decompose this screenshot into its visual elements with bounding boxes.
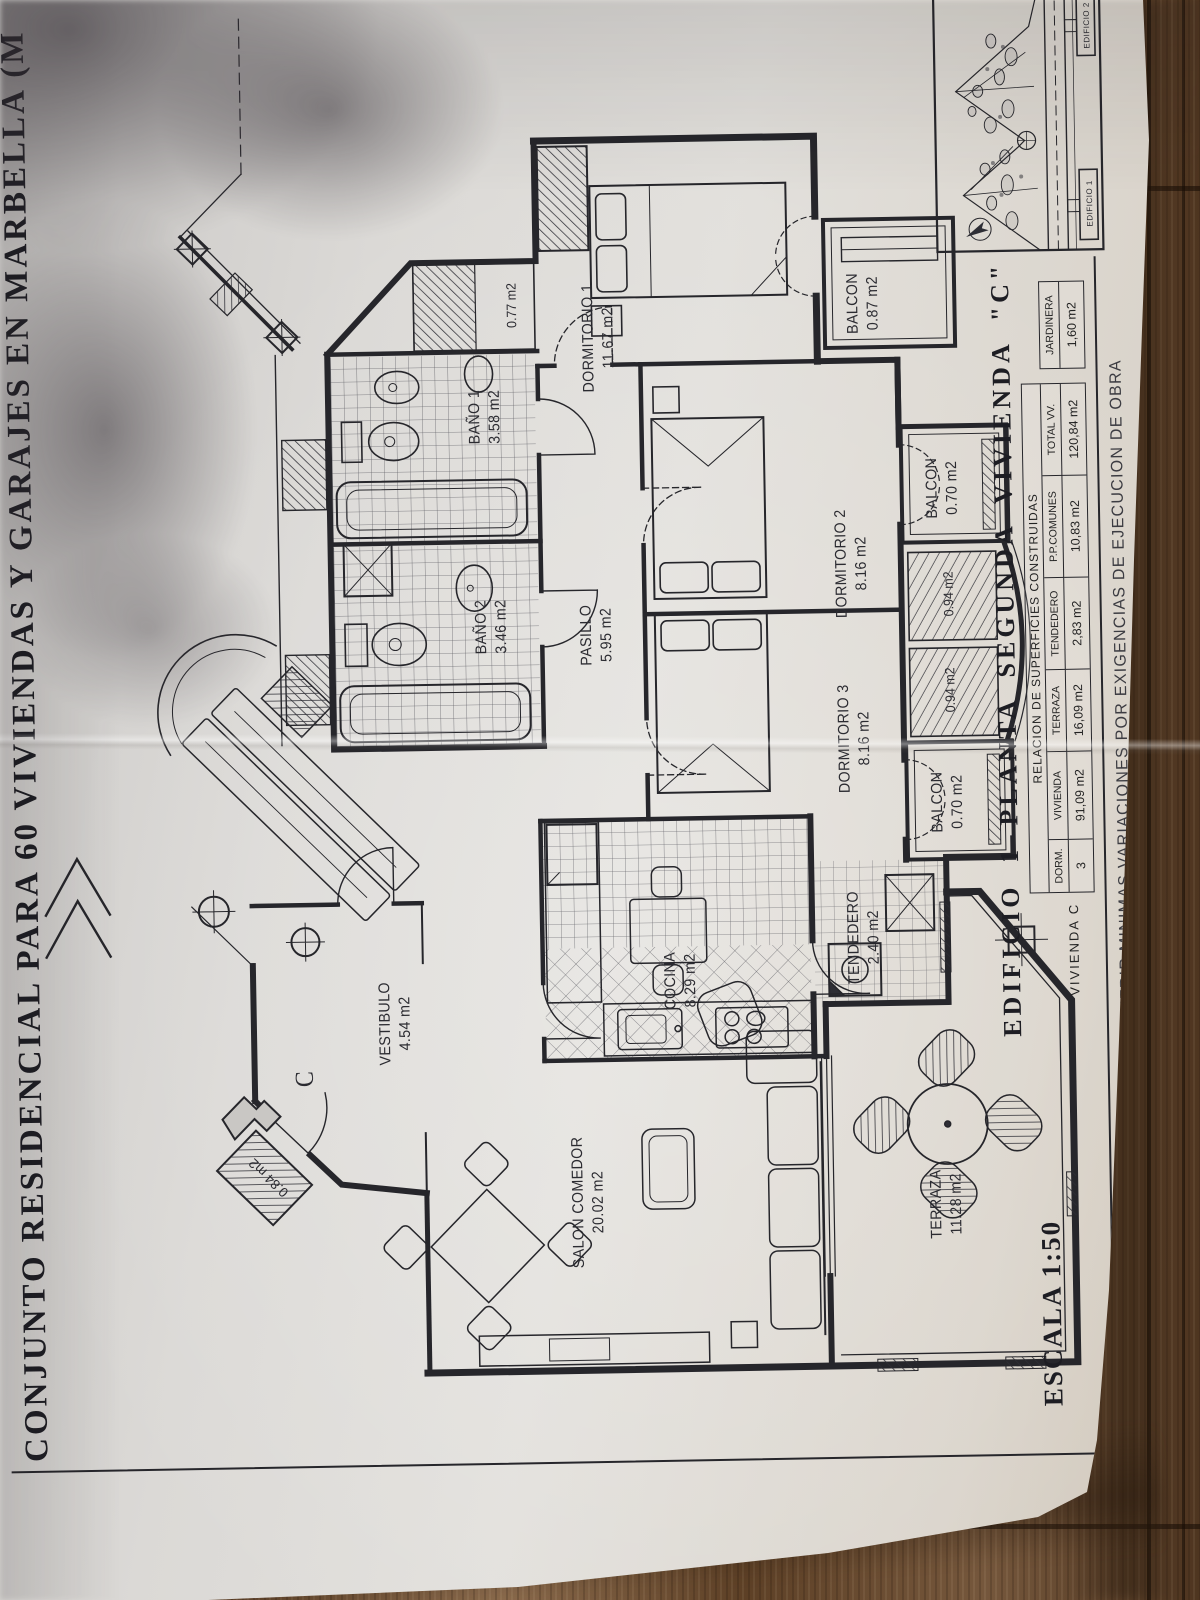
room-label-balcon: BALCON0.70 m2 [927,771,968,833]
room-label-cocina: COCINA8.29 m2 [661,951,702,1009]
room-label-tendedero: TENDEDERO2.40 m2 [843,891,885,985]
room-label-baño-2: BAÑO 23.46 m2 [471,599,512,654]
room-label-baño-1: BAÑO 13.58 m2 [465,389,506,444]
areas-table-main: RELACION DE SUPERFICIES CONSTRUIDAS DORM… [1021,382,1095,893]
table-row-label: VIVIENDA C [1066,902,1097,995]
table-col-dorm: DORM. [1049,840,1070,892]
table-value-5: 120,84 m2 [1061,384,1087,476]
table-value-3: 2,83 m2 [1064,577,1090,669]
table-col-totalvv: TOTAL VV. [1041,384,1063,476]
areas-table-jardinera: JARDINERA 1,60 m2 [1038,281,1086,370]
inset-label-edificio-1: EDIFICIO 1 [1085,180,1095,226]
room-label-terraza: TERRAZA11.28 m2 [926,1169,967,1239]
paper-sheet: CONJUNTO RESIDENCIAL PARA 60 VIVIENDAS Y… [0,0,1200,1600]
area-label-0.84-m2: 0.84 m2 [246,1156,292,1201]
table-value-4: 10,83 m2 [1062,475,1088,577]
jardinera-header: JARDINERA [1039,282,1060,368]
room-label-salon-comedor: SALON COMEDOR20.02 m2 [568,1136,611,1268]
table-value-1: 91,09 m2 [1067,751,1093,839]
drawing-sheet: CONJUNTO RESIDENCIAL PARA 60 VIVIENDAS Y… [0,0,1200,1600]
room-label-balcon: BALCON0.87 m2 [843,273,884,335]
room-label-balcon: BALCON0.70 m2 [922,457,963,519]
table-col-ppcomunes: P.P.COMUNES [1042,476,1064,578]
area-label-0.77-m2: 0.77 m2 [503,283,519,328]
room-label-dormitorio-2: DORMITORIO 28.16 m2 [831,509,873,618]
room-label-pasillo: PASILLO5.95 m2 [576,604,617,666]
photo-frame: CONJUNTO RESIDENCIAL PARA 60 VIVIENDAS Y… [0,0,1200,1600]
table-value-0: 3 [1069,839,1094,891]
table-col-tendedero: TENDEDERO [1044,578,1066,670]
area-label-0.94-m2: 0.94 m2 [941,571,957,616]
scale-label: ESCALA 1:50 [1035,1220,1069,1407]
inset-label-edificio-2: EDIFICIO 2 [1082,2,1092,48]
area-label-0.94-m2: 0.94 m2 [942,667,958,712]
room-label-dormitorio-1: DORMITORIO 111.67 m2 [578,283,620,392]
jardinera-value: 1,60 m2 [1059,282,1084,368]
entrance-letter: C [290,1071,320,1087]
table-col-vivienda: VIVIENDA [1047,752,1069,840]
room-label-vestibulo: VESTIBULO4.54 m2 [375,982,417,1066]
areas-table: VIVIENDA C RELACION DE SUPERFICIES CONST… [1019,281,1096,997]
